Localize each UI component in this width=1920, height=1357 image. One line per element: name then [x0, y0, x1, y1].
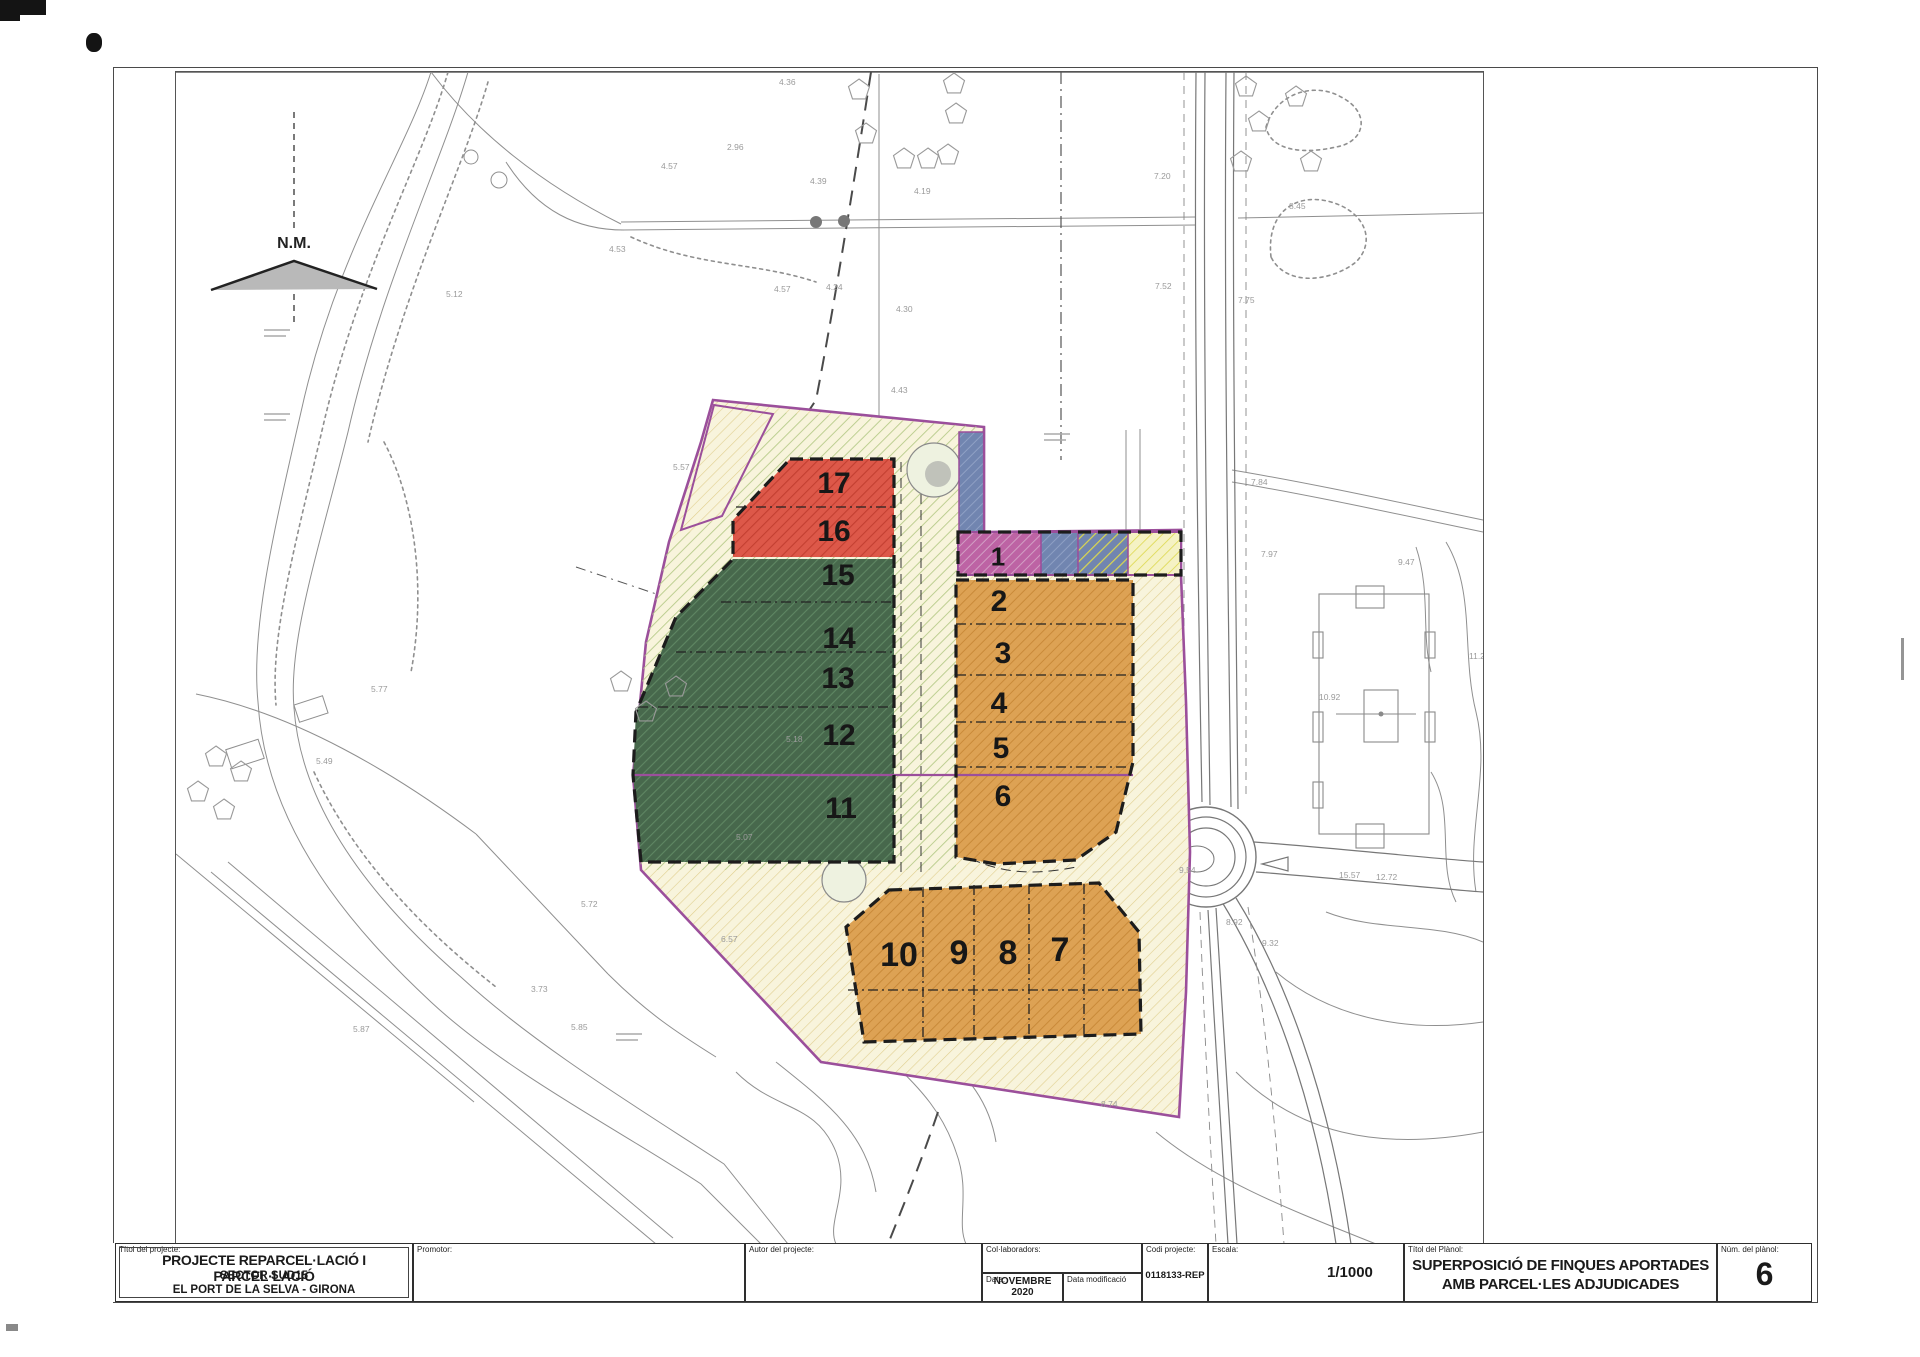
planol-number-value: 6	[1718, 1256, 1811, 1293]
scan-artifact	[1901, 638, 1904, 680]
scan-artifact	[6, 1324, 18, 1331]
project-subtitle-sector: SECTOR SUD15	[116, 1270, 412, 1282]
autor-label: Autor del projecte:	[749, 1245, 814, 1254]
elevation-label: 9.54	[1179, 865, 1196, 875]
planol-number-cell: Núm. del plànol: 6	[1717, 1243, 1812, 1302]
escala-value: 1/1000	[1327, 1264, 1373, 1281]
elevation-label: 5.57	[673, 462, 690, 472]
parcel-strip-blue	[1041, 532, 1078, 575]
building-footprint	[1313, 586, 1435, 848]
codi-projecte-cell: Codi projecte: 0118133-REP	[1142, 1243, 1208, 1302]
parcel-label-16: 16	[817, 515, 850, 548]
parcel-strip-blue-narrow	[959, 432, 984, 532]
elevation-label: 5.85	[571, 1022, 588, 1032]
data-modificacio-cell: Data modificació	[1063, 1273, 1142, 1302]
elevation-label: 5.87	[353, 1024, 370, 1034]
planol-title-cell: Títol del Plànol: SUPERPOSICIÓ DE FINQUE…	[1404, 1243, 1717, 1302]
elevation-label: 15.57	[1339, 870, 1361, 880]
tree-icon	[946, 103, 967, 123]
north-marker: N.M.	[211, 112, 377, 324]
map-frame: N.M.12345678910111213141516174.362.964.5…	[175, 71, 1484, 1245]
parcel-label-4: 4	[991, 687, 1008, 720]
elevation-label: 4.43	[891, 385, 908, 395]
project-title-cell: Títol del projecte: PROJECTE REPARCEL·LA…	[115, 1243, 413, 1302]
parcel-label-12: 12	[822, 719, 855, 752]
elevation-label: 8.92	[1226, 917, 1243, 927]
elevation-label: 4.24	[826, 282, 843, 292]
data-modificacio-label: Data modificació	[1067, 1275, 1126, 1284]
planol-title-line2: AMB PARCEL·LES ADJUDICADES	[1405, 1276, 1716, 1293]
sector-overlay	[633, 400, 1190, 1117]
elevation-label: 4.19	[914, 186, 931, 196]
promotor-cell: Promotor:	[413, 1243, 745, 1302]
elevation-label: 7.20	[1154, 171, 1171, 181]
elevation-label: 5.77	[371, 684, 388, 694]
codi-projecte-label: Codi projecte:	[1146, 1245, 1195, 1254]
tree-icon	[849, 79, 870, 99]
north-label: N.M.	[277, 235, 311, 252]
parcel-label-13: 13	[821, 662, 854, 695]
tree-icon	[1286, 86, 1307, 106]
elevation-label: 6.57	[721, 934, 738, 944]
plan-map: N.M.12345678910111213141516174.362.964.5…	[176, 72, 1483, 1244]
parcel-label-3: 3	[995, 637, 1012, 670]
parcel-label-9: 9	[950, 934, 969, 972]
elevation-label: 10.92	[1319, 692, 1341, 702]
tree-icon	[214, 799, 235, 819]
elevation-label: 4.53	[609, 244, 626, 254]
elevation-label: 5.07	[736, 832, 753, 842]
parcel-strip-blue-yellow	[1078, 532, 1128, 575]
elevation-label: 8.74	[1101, 1099, 1118, 1109]
scan-artifact	[0, 14, 20, 21]
escala-label: Escala:	[1212, 1245, 1238, 1254]
elevation-label: 7.84	[1251, 477, 1268, 487]
north-arrow-icon	[211, 261, 377, 290]
elevation-label: 4.39	[810, 176, 827, 186]
elevation-label: 8.45	[1289, 201, 1306, 211]
codi-projecte-value: 0118133-REP	[1143, 1270, 1207, 1281]
elevation-label: 4.57	[661, 161, 678, 171]
parcel-label-7: 7	[1051, 931, 1070, 969]
elevation-label: 7.75	[1238, 295, 1255, 305]
promotor-label: Promotor:	[417, 1245, 452, 1254]
elevation-label: 4.57	[774, 284, 791, 294]
colaboradors-label: Col·laboradors:	[986, 1245, 1041, 1254]
elevation-label: 9.32	[1262, 938, 1279, 948]
tree-icon	[188, 781, 209, 801]
elevation-label: 5.12	[446, 289, 463, 299]
elevation-label: 5.18	[786, 734, 803, 744]
elevation-label: 4.36	[779, 77, 796, 87]
elevation-label: 9.47	[1398, 557, 1415, 567]
project-subtitle-location: EL PORT DE LA SELVA - GIRONA	[116, 1284, 412, 1296]
tree-icon	[894, 148, 915, 168]
tree-icon	[1249, 111, 1270, 131]
parcel-label-10: 10	[880, 936, 918, 974]
parcel-strip-yellow	[1128, 532, 1181, 575]
date-value: NOVEMBRE 2020	[983, 1276, 1062, 1298]
parcel-label-8: 8	[999, 934, 1018, 972]
planol-number-label: Núm. del plànol:	[1721, 1245, 1779, 1254]
data-cell: Data: NOVEMBRE 2020	[982, 1273, 1063, 1302]
scan-artifact	[0, 0, 46, 15]
parcel-label-14: 14	[822, 622, 856, 655]
elevation-label: 7.97	[1261, 549, 1278, 559]
tree-icon	[231, 761, 252, 781]
planol-label: Títol del Plànol:	[1408, 1245, 1463, 1254]
tree-icon	[918, 148, 939, 168]
parcel-label-6: 6	[995, 780, 1012, 813]
parcel-label-17: 17	[817, 467, 850, 500]
parcel-label-2: 2	[991, 585, 1008, 618]
parcel-label-11: 11	[825, 792, 857, 825]
parcel-label-15: 15	[821, 559, 854, 592]
tree-icon	[938, 144, 959, 164]
colaboradors-cell: Col·laboradors:	[982, 1243, 1142, 1273]
elevation-label: 2.96	[727, 142, 744, 152]
elevation-label: 7.52	[1155, 281, 1172, 291]
title-block: Títol del projecte: PROJECTE REPARCEL·LA…	[113, 1243, 1812, 1302]
scanned-plan-sheet: { "north_marker": { "label": "N.M." }, "…	[0, 0, 1920, 1357]
elevation-label: 5.49	[316, 756, 333, 766]
scan-artifact	[86, 33, 102, 52]
tree-icon	[944, 73, 965, 93]
elevation-label: 12.72	[1376, 872, 1398, 882]
elevation-label: 3.73	[531, 984, 548, 994]
parcel-label-5: 5	[993, 732, 1010, 765]
planol-title-line1: SUPERPOSICIÓ DE FINQUES APORTADES	[1405, 1257, 1716, 1274]
tree-icon	[856, 123, 877, 143]
elevation-label: 11.27	[1469, 651, 1483, 661]
tree-icon	[611, 671, 632, 691]
tree-icon	[206, 746, 227, 766]
parcel-label-1: 1	[991, 541, 1005, 571]
elevation-label: 5.72	[581, 899, 598, 909]
autor-cell: Autor del projecte:	[745, 1243, 982, 1302]
tree-icon	[1301, 151, 1322, 171]
escala-cell: Escala: 1/1000	[1208, 1243, 1404, 1302]
elevation-label: 4.30	[896, 304, 913, 314]
